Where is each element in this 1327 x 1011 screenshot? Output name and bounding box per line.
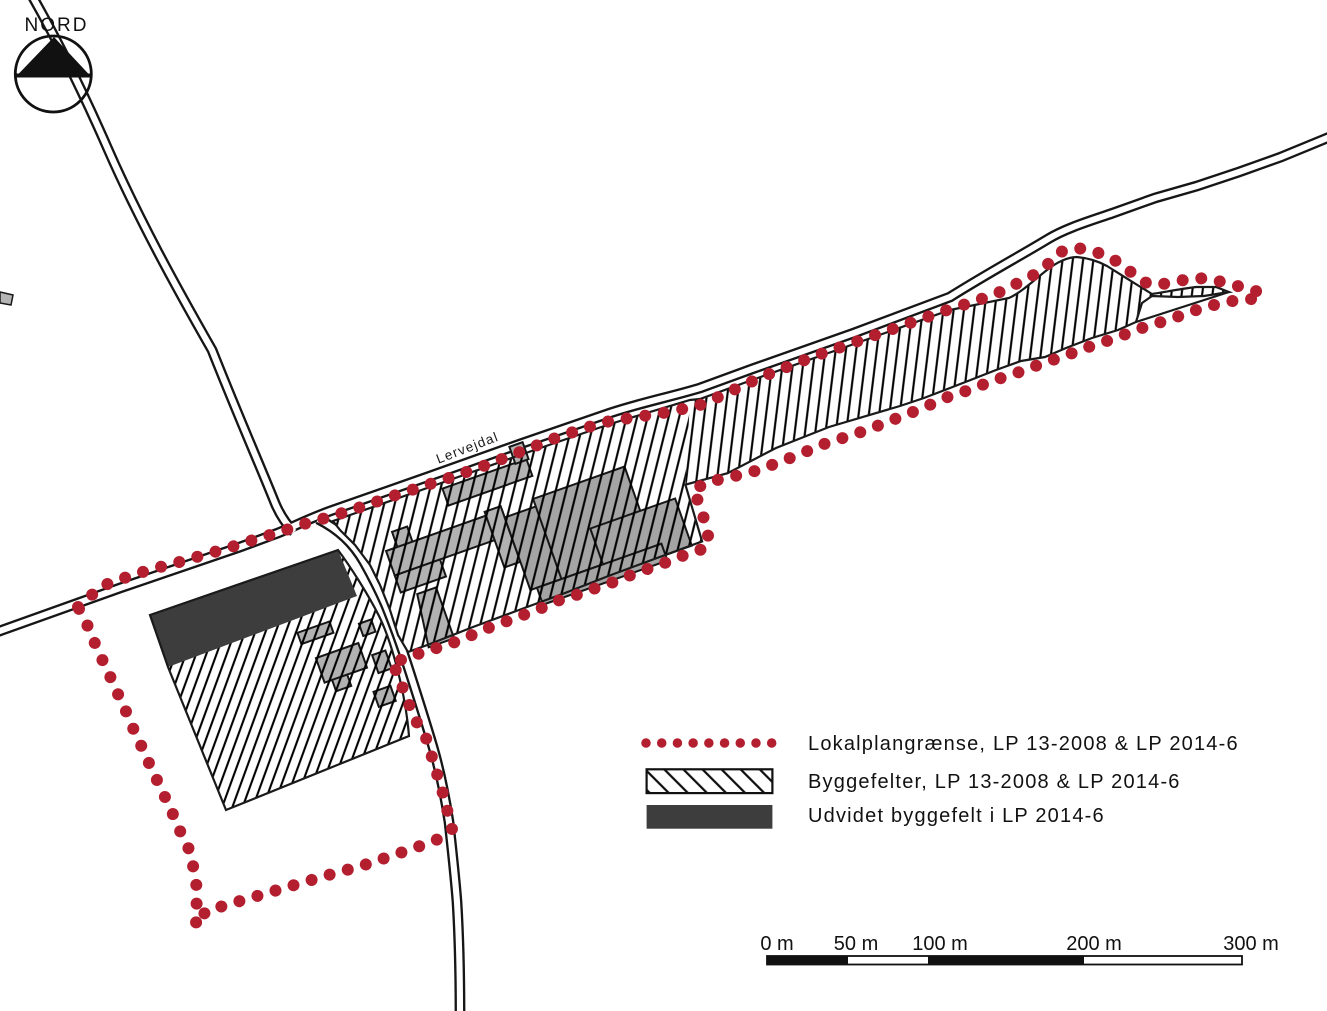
svg-text:100 m: 100 m bbox=[912, 933, 968, 955]
svg-text:300 m: 300 m bbox=[1223, 933, 1279, 955]
svg-text:NORD: NORD bbox=[25, 15, 89, 36]
svg-text:Byggefelter, LP 13-2008 & LP 2: Byggefelter, LP 13-2008 & LP 2014-6 bbox=[808, 771, 1181, 793]
svg-text:0 m: 0 m bbox=[760, 933, 793, 955]
svg-text:Udvidet byggefelt i LP 2014-6: Udvidet byggefelt i LP 2014-6 bbox=[808, 805, 1105, 827]
svg-text:Lokalplangrænse, LP 13-2008 &: Lokalplangrænse, LP 13-2008 & LP 2014-6 bbox=[808, 733, 1239, 755]
svg-text:200 m: 200 m bbox=[1066, 933, 1122, 955]
svg-text:50 m: 50 m bbox=[834, 933, 878, 955]
